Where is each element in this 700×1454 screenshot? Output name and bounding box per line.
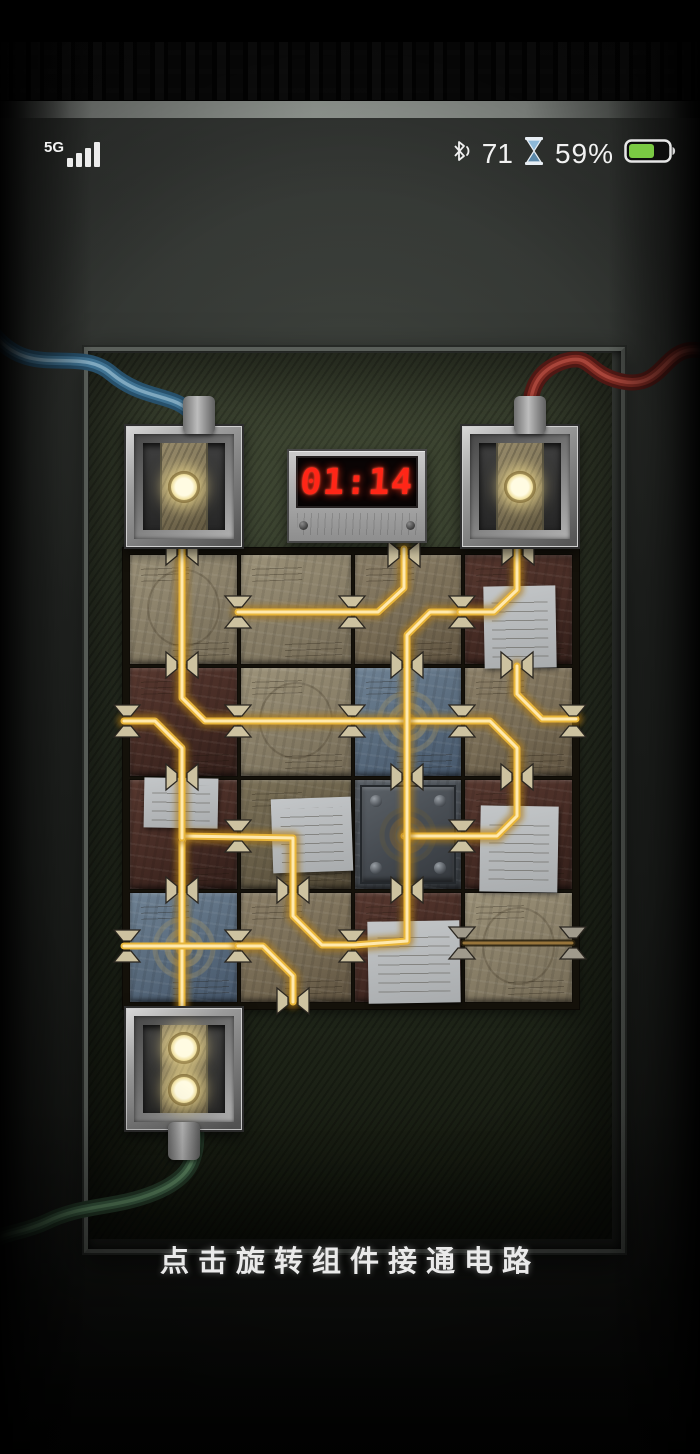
status-right: 71 59% — [450, 136, 678, 173]
indicator-led — [168, 1032, 200, 1064]
countdown-timer: 01:14 — [287, 449, 427, 543]
status-bar: 5G 71 59% — [0, 126, 700, 182]
bluetooth-icon — [450, 137, 472, 172]
cable-gland — [183, 396, 215, 434]
signal-bars-icon — [67, 141, 100, 167]
game-screen: 5G 71 59% — [0, 0, 700, 1454]
screw-icon — [406, 521, 415, 530]
bluetooth-battery-value: 71 — [482, 138, 513, 170]
hint-text: 点击旋转组件接通电路 — [0, 1238, 700, 1280]
timer-digits: 01:14 — [299, 462, 415, 503]
lit-wire-2 — [238, 549, 404, 612]
terminal-top-right — [460, 424, 580, 549]
wires-overlay — [0, 0, 700, 1454]
cable-gland — [168, 1122, 200, 1160]
indicator-led — [504, 471, 536, 503]
indicator-led — [168, 1074, 200, 1106]
lit-wire-0 — [182, 541, 517, 836]
terminal-top-left — [124, 424, 244, 549]
timer-plate-scratches — [297, 513, 417, 535]
timer-screen: 01:14 — [296, 456, 418, 508]
green-cable — [0, 1126, 196, 1241]
status-left: 5G — [44, 141, 100, 167]
cable-gland — [514, 396, 546, 434]
terminal-bottom-left — [124, 1006, 244, 1132]
network-type-label: 5G — [44, 139, 64, 156]
hourglass-icon — [523, 136, 545, 173]
battery-icon — [624, 137, 678, 172]
screw-icon — [299, 521, 308, 530]
battery-percent-label: 59% — [555, 138, 614, 170]
indicator-led — [168, 471, 200, 503]
